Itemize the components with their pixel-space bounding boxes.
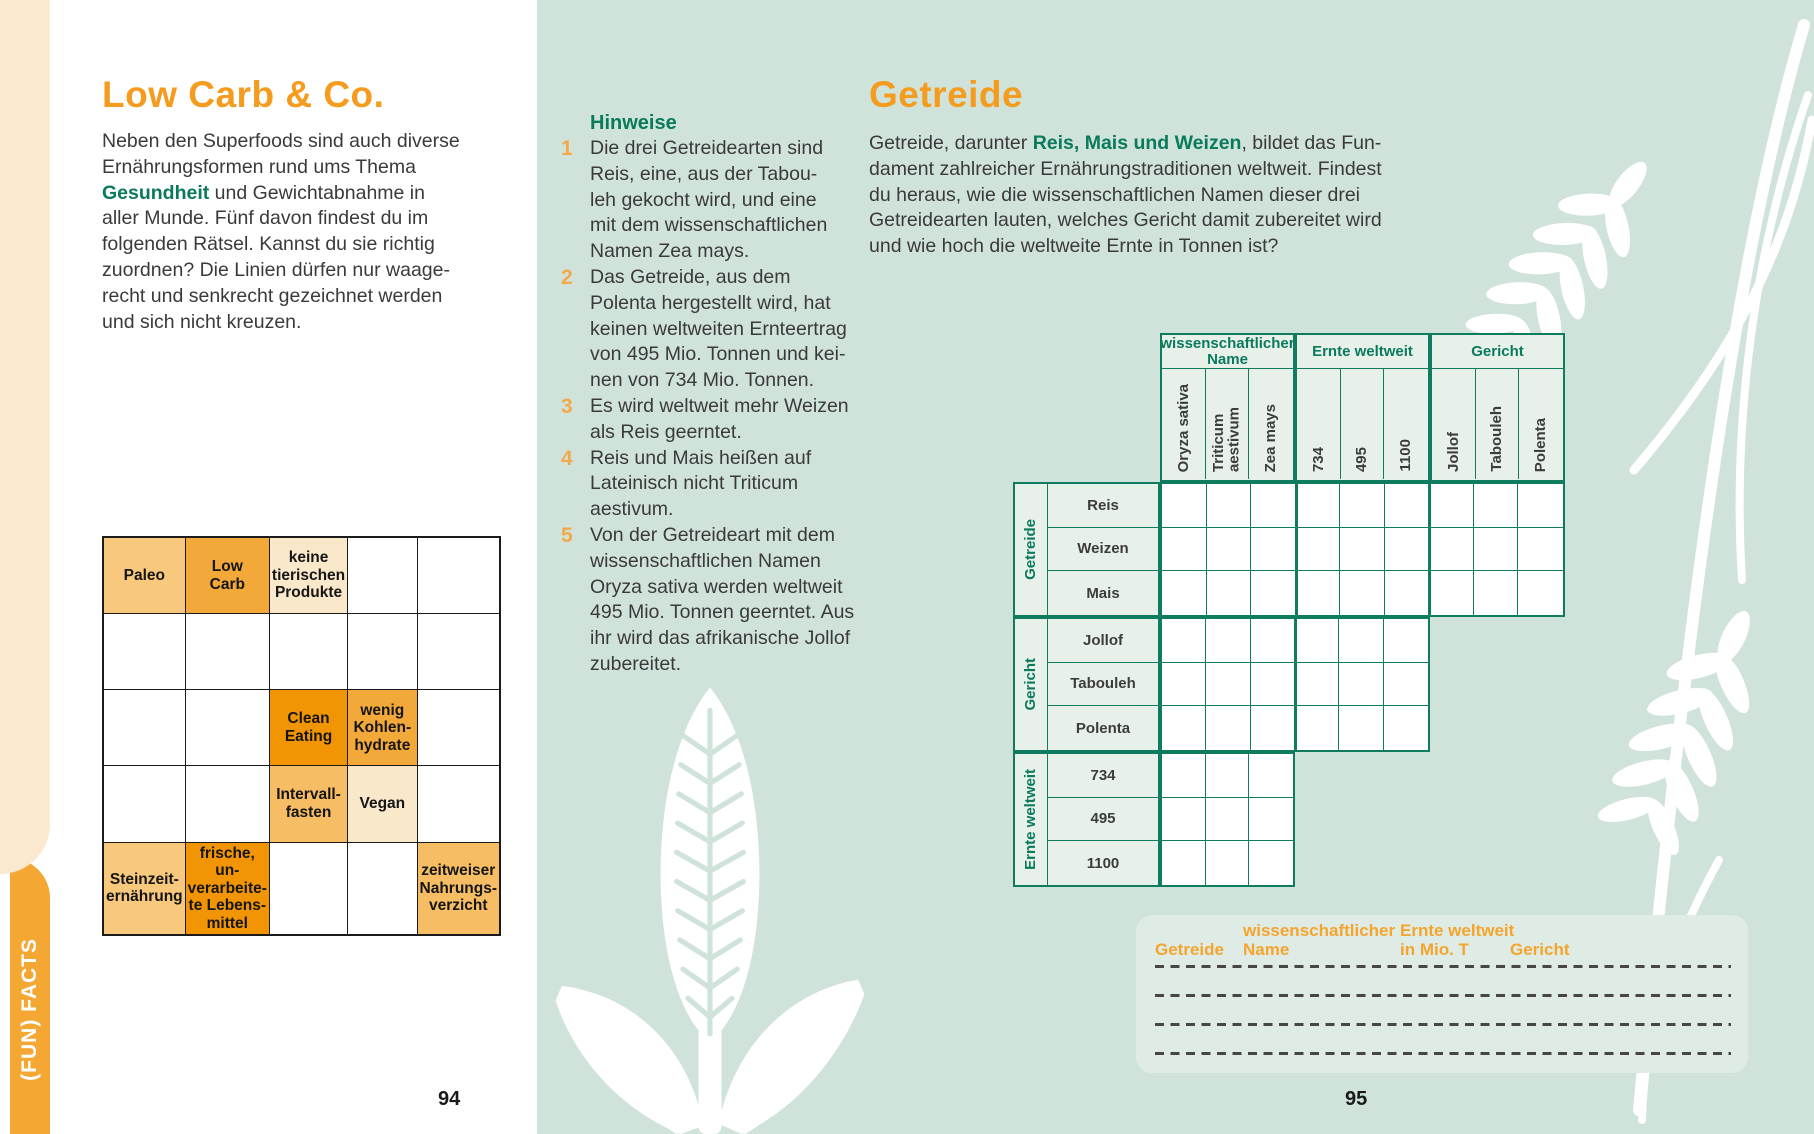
puzzle-row-labels: ReisWeizenMais xyxy=(1048,484,1158,615)
puzzle-col-label: 1100 xyxy=(1384,369,1428,479)
answer-header: Gericht xyxy=(1510,940,1570,959)
puzzle-col-label: Jollof xyxy=(1432,369,1476,479)
puzzle-cell xyxy=(1206,841,1250,885)
puzzle-cell xyxy=(1429,528,1474,572)
lowcarb-grid-cell xyxy=(104,690,186,766)
hint-item: 2Das Getreide, aus dem Polenta hergestel… xyxy=(561,265,883,394)
puzzle-col-label-text: Zea mays xyxy=(1263,404,1279,472)
intro-highlight: Gesundheit xyxy=(102,182,209,204)
puzzle-cell xyxy=(1429,484,1474,528)
puzzle-row-label: 1100 xyxy=(1048,841,1158,885)
hint-item: 5Von der Getreideart mit dem wissenschaf… xyxy=(561,523,883,678)
answer-line xyxy=(1155,1052,1731,1055)
hint-item: 3Es wird weltweit mehr Weizen als Reis g… xyxy=(561,394,883,446)
hints-title: Hinweise xyxy=(590,112,883,135)
puzzle-cell xyxy=(1206,663,1250,707)
fun-facts-label: (FUN) FACTS xyxy=(18,938,42,1081)
puzzle-row-group-label: Gericht xyxy=(1015,619,1048,750)
puzzle-cell xyxy=(1251,571,1296,615)
lowcarb-grid-cell: Paleo xyxy=(104,538,186,614)
puzzle-cell xyxy=(1162,528,1207,572)
puzzle-col-label: Polenta xyxy=(1519,369,1563,479)
puzzle-row-labels: 7344951100 xyxy=(1048,754,1158,885)
answer-header: wissenschaftlicher Name xyxy=(1243,921,1395,959)
lowcarb-grid-cell: keine tierischen Produkte xyxy=(270,538,348,614)
fun-facts-tab: (FUN) FACTS xyxy=(10,858,50,1134)
page-number-right: 95 xyxy=(1345,1088,1367,1111)
hint-number: 5 xyxy=(561,523,590,678)
puzzle-col-label-text: 1100 xyxy=(1398,439,1414,472)
puzzle-row-group: GerichtJollofTaboulehPolenta xyxy=(1013,617,1160,752)
lowcarb-grid-cell: zeitweiser Nahrungs- verzicht xyxy=(418,843,500,935)
answer-header: Getreide xyxy=(1155,940,1224,959)
puzzle-col-label-text: Tabouleh xyxy=(1489,406,1505,472)
puzzle-cell xyxy=(1207,571,1252,615)
hint-number: 2 xyxy=(561,265,590,394)
lowcarb-grid: PaleoLow Carbkeine tierischen ProdukteCl… xyxy=(102,536,501,936)
puzzle-cell xyxy=(1429,571,1474,615)
puzzle-cell xyxy=(1162,706,1206,750)
puzzle-col-label: 734 xyxy=(1297,369,1341,479)
lowcarb-grid-cell xyxy=(186,614,270,690)
puzzle-col-group: Ernte weltweit7344951100 xyxy=(1295,333,1430,482)
lowcarb-grid-cell: Steinzeit- ernährung xyxy=(104,843,186,935)
intro-highlight: Reis, Mais und Weizen xyxy=(1033,132,1242,154)
puzzle-row-label: Weizen xyxy=(1048,528,1158,572)
puzzle-row-group-label-text: Gericht xyxy=(1023,658,1039,711)
puzzle-cell xyxy=(1384,663,1428,707)
hint-number: 1 xyxy=(561,136,590,265)
lowcarb-grid-cell: wenig Kohlen- hydrate xyxy=(348,690,417,766)
answer-header: Ernte weltweit in Mio. T xyxy=(1400,921,1514,959)
puzzle-cell xyxy=(1339,706,1383,750)
puzzle-cell xyxy=(1296,484,1341,528)
puzzle-cell xyxy=(1518,528,1563,572)
puzzle-col-label-text: 495 xyxy=(1354,447,1370,472)
lowcarb-grid-cell xyxy=(348,614,417,690)
hints-block: Hinweise 1Die drei Getreidearten sind Re… xyxy=(561,112,883,678)
hint-item: 4Reis und Mais heißen auf Lateinisch nic… xyxy=(561,446,883,523)
puzzle-cell xyxy=(1385,528,1430,572)
hint-item: 1Die drei Getreidearten sind Reis, eine,… xyxy=(561,136,883,265)
hint-text: Von der Getreideart mit dem wissenschaft… xyxy=(590,523,883,678)
puzzle-col-label: 495 xyxy=(1341,369,1385,479)
puzzle-row-label: 495 xyxy=(1048,798,1158,842)
puzzle-cell xyxy=(1251,663,1295,707)
lowcarb-grid-cell xyxy=(418,766,500,842)
puzzle-cell xyxy=(1385,484,1430,528)
puzzle-row-group-label: Getreide xyxy=(1015,484,1048,615)
puzzle-col-label-text: Polenta xyxy=(1533,418,1549,472)
puzzle-cell xyxy=(1251,619,1295,663)
puzzle-row-label: Polenta xyxy=(1048,706,1158,750)
intro-text: Getreide, darunter xyxy=(869,132,1033,154)
puzzle-cell xyxy=(1249,798,1293,842)
hint-number: 4 xyxy=(561,446,590,523)
puzzle-cell xyxy=(1162,798,1206,842)
puzzle-cell xyxy=(1518,571,1563,615)
answer-line xyxy=(1155,1023,1731,1026)
hints-list: 1Die drei Getreidearten sind Reis, eine,… xyxy=(561,136,883,678)
intro-text: und Gewichtabnahme in aller Munde. Fünf … xyxy=(102,182,450,333)
puzzle-cell-block xyxy=(1160,617,1430,752)
puzzle-cell xyxy=(1249,754,1293,798)
intro-text: Neben den Superfoods sind auch diverse E… xyxy=(102,130,460,178)
lowcarb-grid-cell xyxy=(104,614,186,690)
puzzle-col-label-text: Jollof xyxy=(1446,432,1462,472)
lowcarb-grid-cell: Low Carb xyxy=(186,538,270,614)
puzzle-cell-block xyxy=(1160,752,1295,887)
puzzle-row-group-label-text: Ernte weltweit xyxy=(1023,769,1039,870)
puzzle-cell-block xyxy=(1160,482,1565,617)
puzzle-cell xyxy=(1474,571,1519,615)
hint-text: Das Getreide, aus dem Polenta hergestell… xyxy=(590,265,883,394)
puzzle-col-label-text: Oryza sativa xyxy=(1176,384,1192,472)
answer-line xyxy=(1155,994,1731,997)
puzzle-col-group: GerichtJollofTaboulehPolenta xyxy=(1430,333,1565,482)
puzzle-cell xyxy=(1384,619,1428,663)
page-number-left: 94 xyxy=(438,1088,460,1111)
puzzle-cell xyxy=(1340,528,1385,572)
lowcarb-grid-cell xyxy=(270,614,348,690)
puzzle-cell xyxy=(1207,484,1252,528)
puzzle-cell xyxy=(1162,571,1207,615)
lowcarb-grid-cell: Intervall- fasten xyxy=(270,766,348,842)
lowcarb-grid-cell xyxy=(270,843,348,935)
puzzle-cell xyxy=(1251,484,1296,528)
puzzle-col-group-label: wissenschaftlicher Name xyxy=(1162,335,1293,369)
page-title-right: Getreide xyxy=(869,74,1023,116)
puzzle-cell xyxy=(1162,663,1206,707)
puzzle-cell xyxy=(1385,571,1430,615)
lowcarb-grid-cell xyxy=(418,690,500,766)
puzzle-row-labels: JollofTaboulehPolenta xyxy=(1048,619,1158,750)
lowcarb-grid-cell xyxy=(418,614,500,690)
puzzle-cell xyxy=(1162,841,1206,885)
puzzle-cell xyxy=(1162,754,1206,798)
puzzle-cell xyxy=(1340,484,1385,528)
puzzle-row-label: Jollof xyxy=(1048,619,1158,663)
lowcarb-grid-cell: frische, un- verarbeite- te Lebens- mitt… xyxy=(186,843,270,935)
puzzle-col-group: wissenschaftlicher NameOryza sativaTriti… xyxy=(1160,333,1295,482)
puzzle-cell xyxy=(1249,841,1293,885)
puzzle-col-group-label: Ernte weltweit xyxy=(1297,335,1428,369)
puzzle-col-group-label: Gericht xyxy=(1432,335,1563,369)
puzzle-cell xyxy=(1251,528,1296,572)
hint-text: Reis und Mais heißen auf Lateinisch nich… xyxy=(590,446,883,523)
puzzle-cell xyxy=(1339,663,1383,707)
logic-puzzle-grid: wissenschaftlicher NameOryza sativaTriti… xyxy=(1013,333,1565,887)
hint-text: Es wird weltweit mehr Weizen als Reis ge… xyxy=(590,394,883,446)
left-intro-paragraph: Neben den Superfoods sind auch diverse E… xyxy=(102,129,482,335)
puzzle-col-labels: 7344951100 xyxy=(1297,369,1428,479)
hint-text: Die drei Getreidearten sind Reis, eine, … xyxy=(590,136,883,265)
puzzle-cell xyxy=(1162,484,1207,528)
puzzle-row-group: GetreideReisWeizenMais xyxy=(1013,482,1160,617)
puzzle-row-group: Ernte weltweit7344951100 xyxy=(1013,752,1160,887)
puzzle-col-label: Tabouleh xyxy=(1476,369,1520,479)
puzzle-cell xyxy=(1295,706,1339,750)
answer-line xyxy=(1155,965,1731,968)
puzzle-cell xyxy=(1206,798,1250,842)
puzzle-row-label: Tabouleh xyxy=(1048,663,1158,707)
puzzle-cell xyxy=(1296,571,1341,615)
puzzle-cell xyxy=(1340,571,1385,615)
puzzle-cell xyxy=(1339,619,1383,663)
puzzle-col-label: Zea mays xyxy=(1249,369,1293,479)
puzzle-col-label-text: 734 xyxy=(1311,447,1327,472)
puzzle-cell xyxy=(1474,484,1519,528)
puzzle-cell xyxy=(1296,528,1341,572)
puzzle-cell xyxy=(1162,619,1206,663)
puzzle-cell xyxy=(1474,528,1519,572)
puzzle-row-group-label-text: Getreide xyxy=(1023,519,1039,580)
puzzle-row-label: Mais xyxy=(1048,571,1158,615)
puzzle-col-label-text: Triticum aestivum xyxy=(1211,407,1242,472)
puzzle-col-label: Triticum aestivum xyxy=(1206,369,1250,479)
puzzle-col-labels: JollofTaboulehPolenta xyxy=(1432,369,1563,479)
answer-panel: Getreidewissenschaftlicher NameErnte wel… xyxy=(1136,915,1748,1073)
puzzle-col-labels: Oryza sativaTriticum aestivumZea mays xyxy=(1162,369,1293,479)
puzzle-cell xyxy=(1384,706,1428,750)
puzzle-cell xyxy=(1518,484,1563,528)
puzzle-row-label: 734 xyxy=(1048,754,1158,798)
lowcarb-grid-cell xyxy=(186,766,270,842)
puzzle-cell xyxy=(1295,663,1339,707)
lowcarb-grid-cell xyxy=(348,843,417,935)
puzzle-col-label: Oryza sativa xyxy=(1162,369,1206,479)
lowcarb-grid-cell: Clean Eating xyxy=(270,690,348,766)
puzzle-cell xyxy=(1251,706,1295,750)
corn-illustration xyxy=(550,675,870,1134)
lowcarb-grid-cell: Vegan xyxy=(348,766,417,842)
lowcarb-grid-cell xyxy=(186,690,270,766)
lowcarb-grid-cell xyxy=(418,538,500,614)
lowcarb-grid-cell xyxy=(348,538,417,614)
lowcarb-grid-cell xyxy=(104,766,186,842)
page-title-left: Low Carb & Co. xyxy=(102,74,384,116)
puzzle-cell xyxy=(1295,619,1339,663)
puzzle-cell xyxy=(1206,754,1250,798)
puzzle-cell xyxy=(1207,528,1252,572)
puzzle-row-group-label: Ernte weltweit xyxy=(1015,754,1048,885)
hint-number: 3 xyxy=(561,394,590,446)
right-intro-paragraph: Getreide, darunter Reis, Mais und Weizen… xyxy=(869,131,1434,260)
page-edge-strip xyxy=(0,0,50,874)
puzzle-cell xyxy=(1206,706,1250,750)
puzzle-row-label: Reis xyxy=(1048,484,1158,528)
puzzle-cell xyxy=(1206,619,1250,663)
